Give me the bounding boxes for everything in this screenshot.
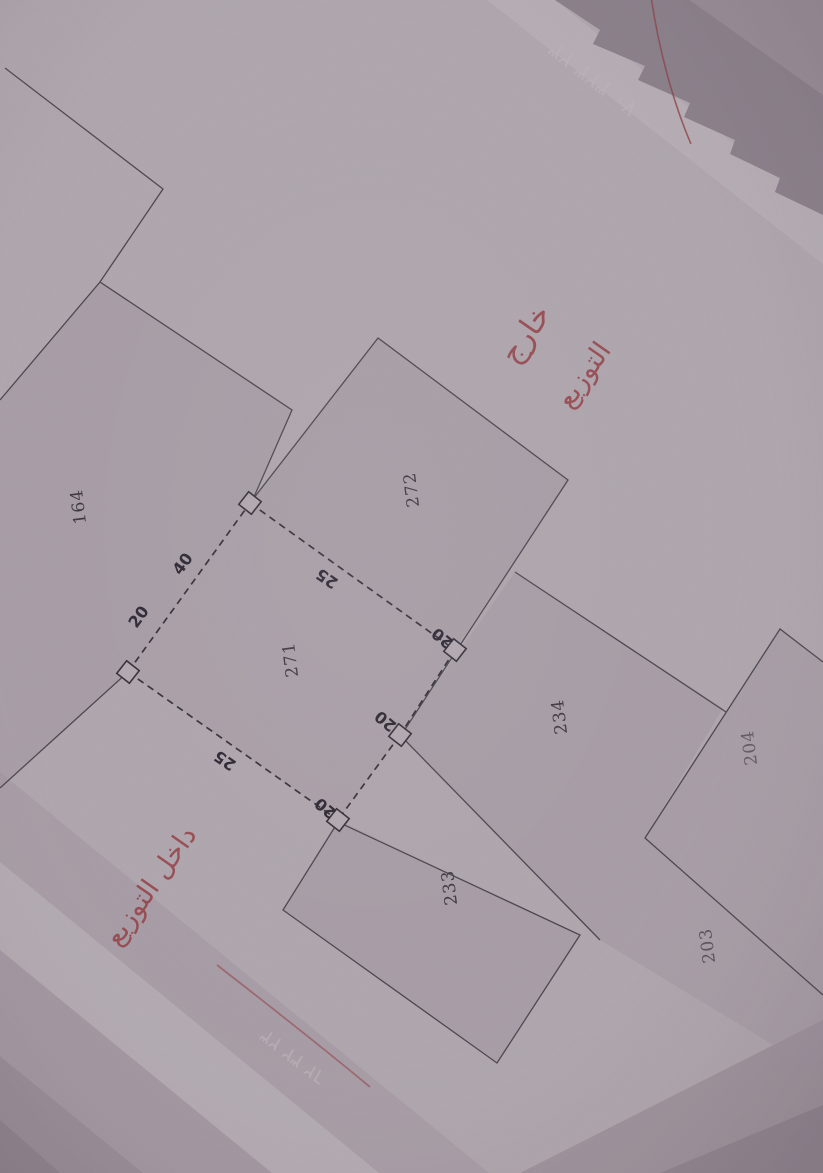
photo-grain	[0, 0, 823, 1173]
plan-canvas: 164 272 271 234 233 204 203 20 40 25 20 …	[0, 0, 823, 1173]
photographed-survey-plan: 164 272 271 234 233 204 203 20 40 25 20 …	[0, 0, 823, 1173]
